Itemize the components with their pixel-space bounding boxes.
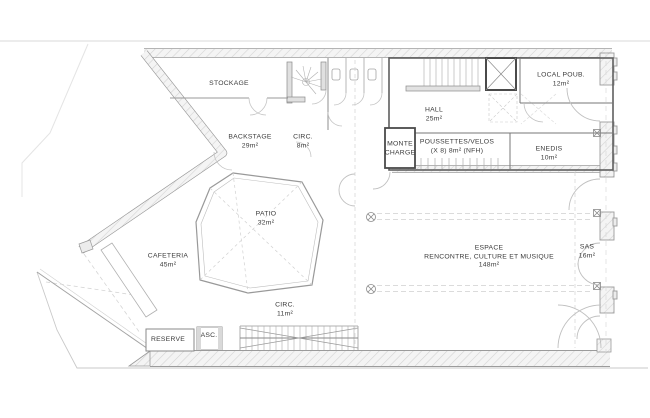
patio-outline [196, 173, 323, 293]
room-label-hall: HALL25m² [425, 107, 443, 124]
floor-plan-drawing [0, 0, 650, 418]
room-label-reserve: RESERVE [151, 336, 185, 345]
room-label-local-poub: LOCAL POUB.12m² [537, 72, 585, 89]
main-staircase [240, 326, 358, 350]
facade-door-arcs [339, 88, 601, 348]
floor-plan: STOCKAGE BACKSTAGE29m² CIRC.8m² PATIO32m… [0, 0, 650, 418]
room-label-circ-11: CIRC.11m² [275, 302, 295, 319]
hall-staircase [406, 59, 480, 91]
facade-piers-right [600, 53, 617, 313]
room-label-enedis: ENEDIS10m² [536, 146, 563, 163]
room-label-monte-charge: MONTE CHARGE [381, 141, 419, 158]
room-label-asc: ASC. [201, 332, 218, 341]
room-label-backstage: BACKSTAGE29m² [228, 134, 271, 151]
room-label-stockage: STOCKAGE [209, 80, 249, 89]
elevator-shaft [486, 58, 517, 122]
local-poub-door-arc [524, 103, 543, 122]
room-label-poussettes: POUSSETTES/VELOS(X 8) 8m² (NFH) [420, 139, 494, 156]
room-label-cafeteria: CAFETERIA45m² [148, 253, 188, 270]
wc-fixtures [332, 69, 376, 80]
room-label-sas: SAS16m² [579, 244, 596, 261]
spiral-staircase [287, 62, 326, 104]
room-label-patio: PATIO32m² [256, 211, 277, 228]
roof-hatch-dashes [521, 94, 556, 124]
room-label-espace: ESPACERENCONTRE, CULTURE ET MUSIQUE148m² [424, 244, 554, 270]
room-label-circ-8: CIRC.8m² [293, 134, 313, 151]
parcel-boundary [22, 44, 88, 197]
